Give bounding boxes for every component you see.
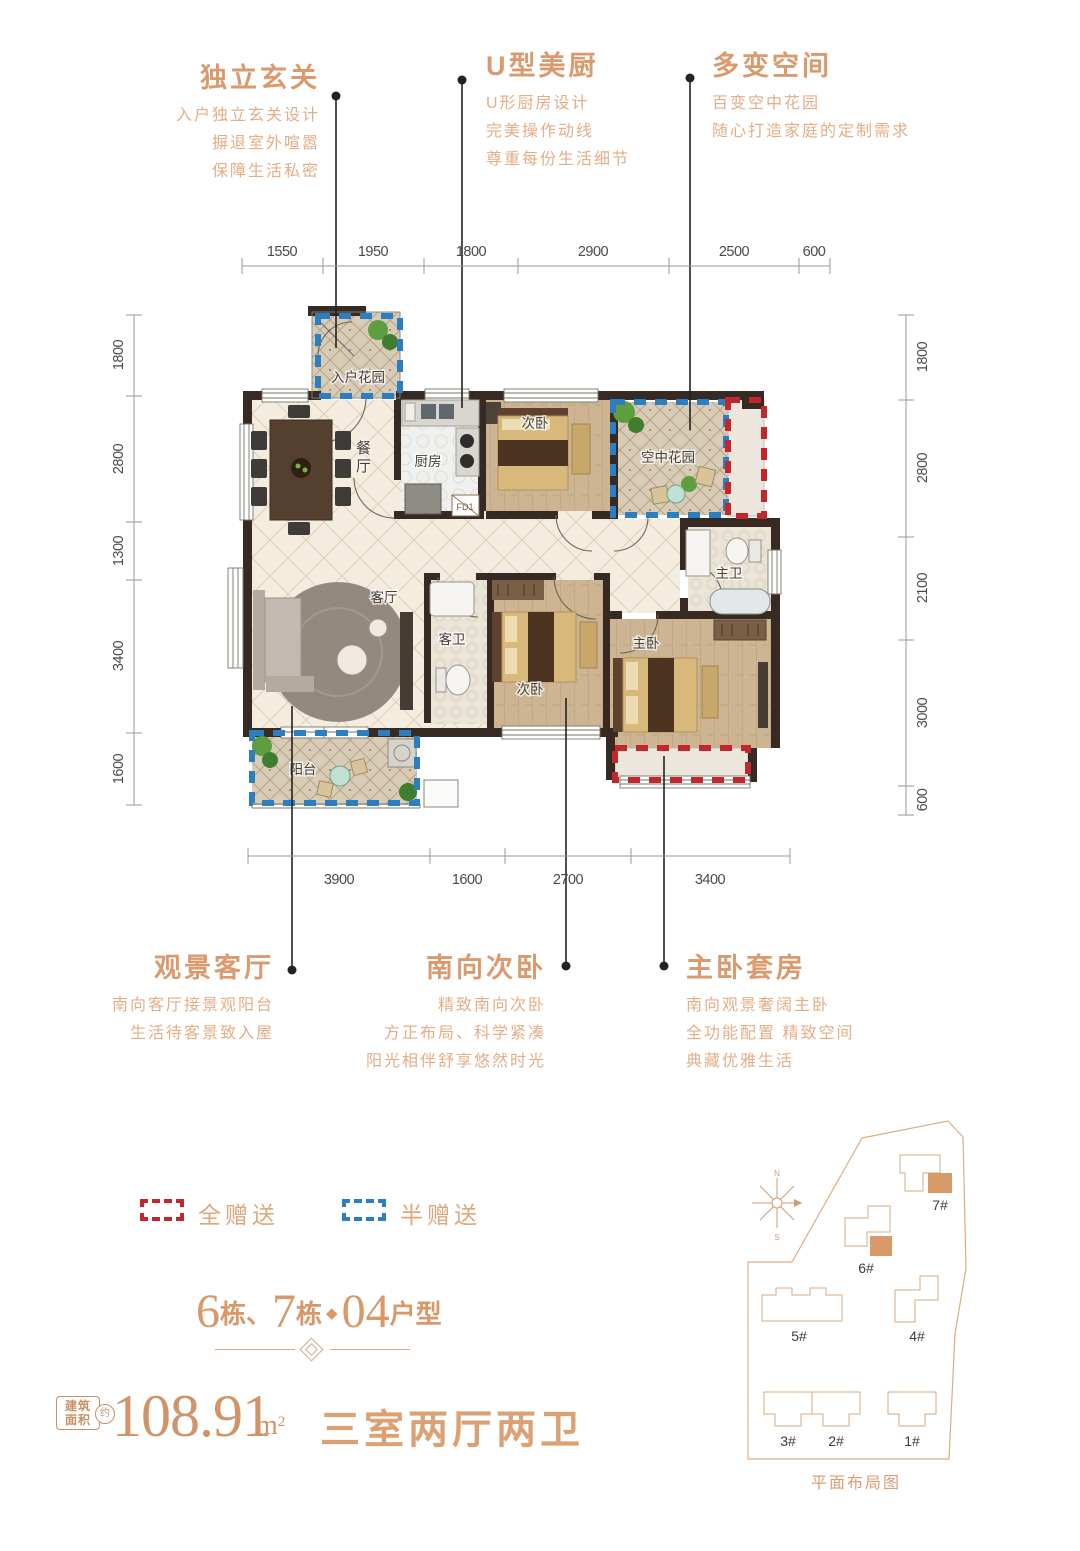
building-1-label: 1# <box>904 1433 920 1449</box>
dims-left <box>126 315 142 805</box>
building-2 <box>812 1392 860 1426</box>
feature-south-bedroom: 南向次卧 精致南向次卧 方正布局、科学紧凑 阳光相伴舒享悠然时光 <box>366 952 546 1076</box>
feature-title: 多变空间 <box>712 50 910 82</box>
feature-line: 百变空中花园 <box>712 90 910 118</box>
floor-plan: 入户花园 厨房 次卧 空中花园 主卫 客厅 客卫 次卧 主卧 阳台 FD1 <box>228 306 781 808</box>
building-3 <box>764 1392 812 1426</box>
dims-left-labels: 1800 2800 1300 3400 1600 <box>111 339 127 784</box>
dim-value: 3900 <box>324 872 355 888</box>
building-1 <box>888 1392 936 1426</box>
building-3-label: 3# <box>780 1433 796 1449</box>
unit-number: 04 <box>342 1285 390 1338</box>
building-7 <box>900 1155 952 1193</box>
feature-line: 南向客厅接景观阳台 <box>112 992 274 1020</box>
gift-strip-floor <box>728 400 764 516</box>
feature-title: 南向次卧 <box>366 952 546 984</box>
dims-bottom <box>248 848 790 864</box>
label-bedroom-south: 次卧 <box>517 682 544 697</box>
dim-value: 3400 <box>695 872 726 888</box>
unit-building-number: 7 <box>272 1285 296 1338</box>
feature-line: 全功能配置 精致空间 <box>686 1020 854 1048</box>
label-entry-garden: 入户花园 <box>331 369 385 385</box>
dim-value: 1300 <box>111 535 127 566</box>
area-layout: 三室两厅两卫 <box>320 1397 584 1455</box>
legend-half-gift-swatch <box>342 1199 386 1221</box>
window <box>768 550 781 594</box>
dims-right <box>898 315 914 815</box>
compass-south-label: S <box>774 1233 779 1242</box>
building-7-label: 7# <box>932 1197 948 1213</box>
floorplan-poster: { "colors": { "accent": "#db9a6e", "acce… <box>0 0 1080 1551</box>
siteplan-caption: 平面布局图 <box>811 1474 901 1492</box>
divider-right <box>330 1349 410 1350</box>
dims-top-labels: 1550 1950 1800 2900 2500 600 <box>267 244 826 260</box>
dim-value: 600 <box>915 788 931 811</box>
feature-u-kitchen: U型美厨 U形厨房设计 完美操作动线 尊重每份生活细节 <box>486 50 630 174</box>
window <box>262 389 308 402</box>
building-6-label: 6# <box>858 1260 874 1276</box>
building-4 <box>895 1276 938 1322</box>
dim-value: 1550 <box>267 244 298 260</box>
dim-value: 1800 <box>111 339 127 370</box>
feature-entry-hall: 独立玄关 入户独立玄关设计 摒退室外喧嚣 保障生活私密 <box>176 62 320 186</box>
bay-window <box>228 568 243 668</box>
dim-value: 3000 <box>915 697 931 728</box>
unit-title: 6栋、7栋◆04户型 <box>196 1288 456 1336</box>
dim-value: 1800 <box>915 341 931 372</box>
dims-bottom-labels: 3900 1600 2700 3400 <box>324 872 726 888</box>
compass-north-label: N <box>774 1169 780 1178</box>
leader-kitchen <box>458 76 467 409</box>
dims-right-labels: 1800 2800 2100 3000 600 <box>915 341 931 811</box>
feature-line: 尊重每份生活细节 <box>486 146 630 174</box>
label-fd: FD1 <box>456 502 473 512</box>
building-4-label: 4# <box>909 1328 925 1344</box>
feature-title: 主卧套房 <box>686 952 854 984</box>
feature-line: 完美操作动线 <box>486 118 630 146</box>
building-2-label: 2# <box>828 1433 844 1449</box>
dim-value: 2100 <box>915 572 931 603</box>
unit-building-number: 6 <box>196 1285 220 1338</box>
feature-line: 南向观景奢阔主卧 <box>686 992 854 1020</box>
site-plan: N S 7# 6# 5# 4 <box>748 1121 966 1492</box>
feature-title: 独立玄关 <box>176 62 320 94</box>
diamond-icon: ◆ <box>322 1305 342 1322</box>
dim-value: 3400 <box>111 640 127 671</box>
feature-line: 摒退室外喧嚣 <box>176 130 320 158</box>
building-5-label: 5# <box>791 1328 807 1344</box>
master-bay-floor <box>615 748 748 780</box>
compass-icon: N S <box>752 1169 802 1242</box>
label-balcony: 阳台 <box>290 762 317 777</box>
legend-half-gift-label: 半赠送 <box>400 1196 481 1230</box>
feature-title: U型美厨 <box>486 50 630 82</box>
label-dining: 餐厅 <box>352 440 373 476</box>
feature-line: 保障生活私密 <box>176 158 320 186</box>
label-living: 客厅 <box>371 589 398 605</box>
dims-top <box>242 258 830 274</box>
divider-left <box>215 1349 295 1350</box>
dim-value: 1600 <box>452 872 483 888</box>
feature-line: 生活待客景致入屋 <box>112 1020 274 1048</box>
label-master-bath: 主卫 <box>716 566 743 581</box>
dim-value: 2800 <box>915 452 931 483</box>
dim-value: 2500 <box>719 244 750 260</box>
dim-value: 1600 <box>111 753 127 784</box>
area-value: 108.91 <box>112 1388 271 1444</box>
feature-title: 观景客厅 <box>112 952 274 984</box>
dim-value: 2900 <box>578 244 609 260</box>
building-6 <box>845 1206 892 1256</box>
poster-graphics: 入户花园 厨房 次卧 空中花园 主卫 客厅 客卫 次卧 主卧 阳台 FD1 <box>0 0 1080 1551</box>
dim-value: 600 <box>803 244 826 260</box>
dim-value: 2800 <box>111 443 127 474</box>
label-kitchen: 厨房 <box>415 454 442 469</box>
label-guest-bath: 客卫 <box>439 631 466 647</box>
feature-view-living: 观景客厅 南向客厅接景观阳台 生活待客景致入屋 <box>112 952 274 1048</box>
label-bedroom-north: 次卧 <box>522 416 549 431</box>
feature-line: 入户独立玄关设计 <box>176 102 320 130</box>
building-5 <box>762 1288 842 1321</box>
area-badge: 建筑 面积 <box>56 1396 100 1430</box>
feature-line: U形厨房设计 <box>486 90 630 118</box>
label-master-bedroom: 主卧 <box>633 636 660 651</box>
legend-full-gift-swatch <box>140 1199 184 1221</box>
feature-line: 方正布局、科学紧凑 <box>366 1020 546 1048</box>
window <box>502 726 600 739</box>
legend-full-gift-label: 全赠送 <box>198 1196 279 1230</box>
feature-line: 随心打造家庭的定制需求 <box>712 118 910 146</box>
area-unit: m2 <box>256 1410 285 1442</box>
feature-line: 典藏优雅生活 <box>686 1048 854 1076</box>
feature-line: 精致南向次卧 <box>366 992 546 1020</box>
dim-value: 2700 <box>553 872 584 888</box>
label-sky-garden: 空中花园 <box>641 450 695 465</box>
leader-space <box>686 74 695 431</box>
entry-garden-floor <box>312 312 400 398</box>
dim-value: 1800 <box>456 244 487 260</box>
feature-flex-space: 多变空间 百变空中花园 随心打造家庭的定制需求 <box>712 50 910 146</box>
feature-master-suite: 主卧套房 南向观景奢阔主卧 全功能配置 精致空间 典藏优雅生活 <box>686 952 854 1076</box>
equipment-platform <box>424 780 458 807</box>
window <box>504 389 598 402</box>
dim-value: 1950 <box>358 244 389 260</box>
feature-line: 阳光相伴舒享悠然时光 <box>366 1048 546 1076</box>
